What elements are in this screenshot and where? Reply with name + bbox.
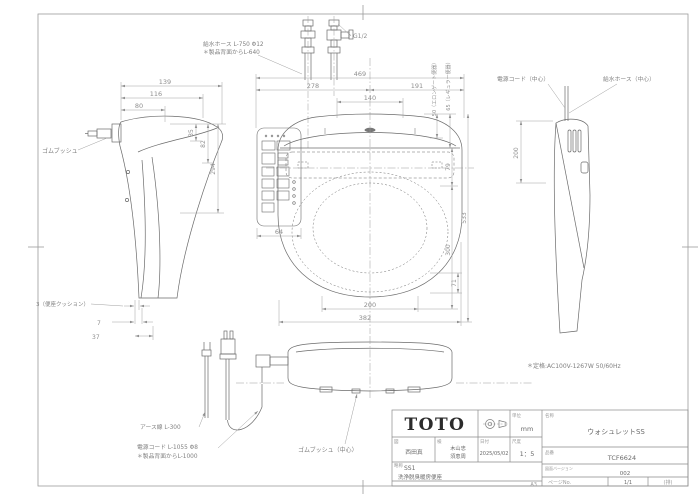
dim-37: 37: [92, 334, 100, 341]
dim-64: 64: [275, 228, 283, 236]
dim-533: 533: [461, 212, 468, 224]
unit-label: 単位: [512, 412, 521, 419]
checker-label: 検: [437, 438, 442, 445]
checker-name-2: 須恵周: [450, 452, 466, 460]
dim-278: 278: [307, 82, 319, 90]
dim-50-elongated: 50（エロンゲート便器）: [431, 60, 438, 116]
checker-name-1: 木山忠: [450, 444, 466, 452]
label-power-cord-center: 電源コード（中心）: [497, 75, 549, 83]
drafter-name: 西田真: [405, 448, 423, 456]
dim-382: 382: [359, 314, 371, 322]
dim-65-regular: 65（レギュラー便器）: [445, 59, 452, 110]
water-valve-fittings: [301, 20, 353, 80]
series-value: SS1: [404, 465, 416, 472]
dim-82: 82: [200, 140, 207, 148]
dim-116: 116: [150, 90, 162, 98]
side-view-right: [554, 86, 590, 333]
page-label: ページNo.: [548, 480, 572, 486]
scale-value: 1：5: [520, 450, 535, 458]
dim-140: 140: [364, 94, 376, 102]
right-view-dims: [516, 84, 617, 183]
label-hose-center: 給水ホース（中心）: [603, 75, 655, 83]
name-label: 名称: [545, 412, 554, 419]
drafter-label: 図: [394, 439, 399, 445]
sheet-size: A3: [530, 482, 537, 488]
label-g-thread: G1/2: [353, 33, 367, 40]
label-seat-cushion: 3（便座クッション）: [36, 300, 89, 308]
label-rubber-bush: ゴムブッシュ: [42, 147, 78, 155]
date-value: 2025/05/02: [480, 451, 509, 457]
dim-right-200: 200: [513, 147, 520, 159]
label-power-cord-1: 電源コード L-1055 Φ8: [137, 443, 198, 451]
dim-300: 300: [445, 244, 452, 256]
version-label: 図面バージョン: [545, 466, 573, 471]
label-earth-wire: アース線 L-300: [140, 423, 181, 431]
dim-35: 35: [188, 129, 195, 137]
dim-139: 139: [159, 78, 171, 86]
label-hose-top-2: ＊製品背面からL-640: [203, 48, 260, 56]
unit-value: mm: [521, 425, 534, 433]
version-value: 002: [620, 471, 631, 477]
dim-7: 7: [97, 320, 101, 327]
dim-200: 200: [364, 301, 376, 309]
dim-469: 469: [354, 70, 366, 78]
dim-80: 80: [135, 102, 143, 110]
scale-label: 尺度: [512, 438, 521, 445]
projection-symbol-icon: [483, 420, 508, 429]
toto-logo: TOTO: [405, 415, 466, 435]
cord-leaders: [199, 394, 357, 448]
earth-wire-and-plug: [202, 331, 262, 430]
dim-294: 294: [210, 163, 217, 175]
dim-71: 71: [451, 279, 458, 287]
product-name: ウォシュレットSS: [587, 428, 645, 436]
number-label: 品番: [545, 449, 554, 456]
cad-drawing: 139 116 80 35 82 294 ゴムブッシュ 3（便座クッション） 7…: [0, 0, 700, 495]
dim-191: 191: [411, 82, 423, 90]
category-value: 洗浄脱臭暖房便座: [398, 473, 443, 481]
product-number: TCF6624: [607, 454, 636, 462]
drawing-sheet: 139 116 80 35 82 294 ゴムブッシュ 3（便座クッション） 7…: [0, 0, 700, 495]
page-note: (排): [664, 479, 673, 486]
dim-79: 79: [445, 163, 452, 171]
rating-note: ＊定格:AC100V-1267W 50/60Hz: [527, 362, 621, 370]
front-view: [256, 342, 452, 393]
page-value: 1/1: [624, 480, 632, 486]
label-power-cord-2: ＊製品背面からL-1000: [137, 452, 198, 460]
series-label: 略称: [394, 462, 403, 469]
label-rubber-bush-center: ゴムブッシュ（中心）: [298, 446, 358, 454]
drawing-frame: [28, 5, 698, 494]
label-hose-top-1: 給水ホース L-750 Φ12: [203, 40, 264, 48]
date-label: 日付: [480, 438, 489, 445]
